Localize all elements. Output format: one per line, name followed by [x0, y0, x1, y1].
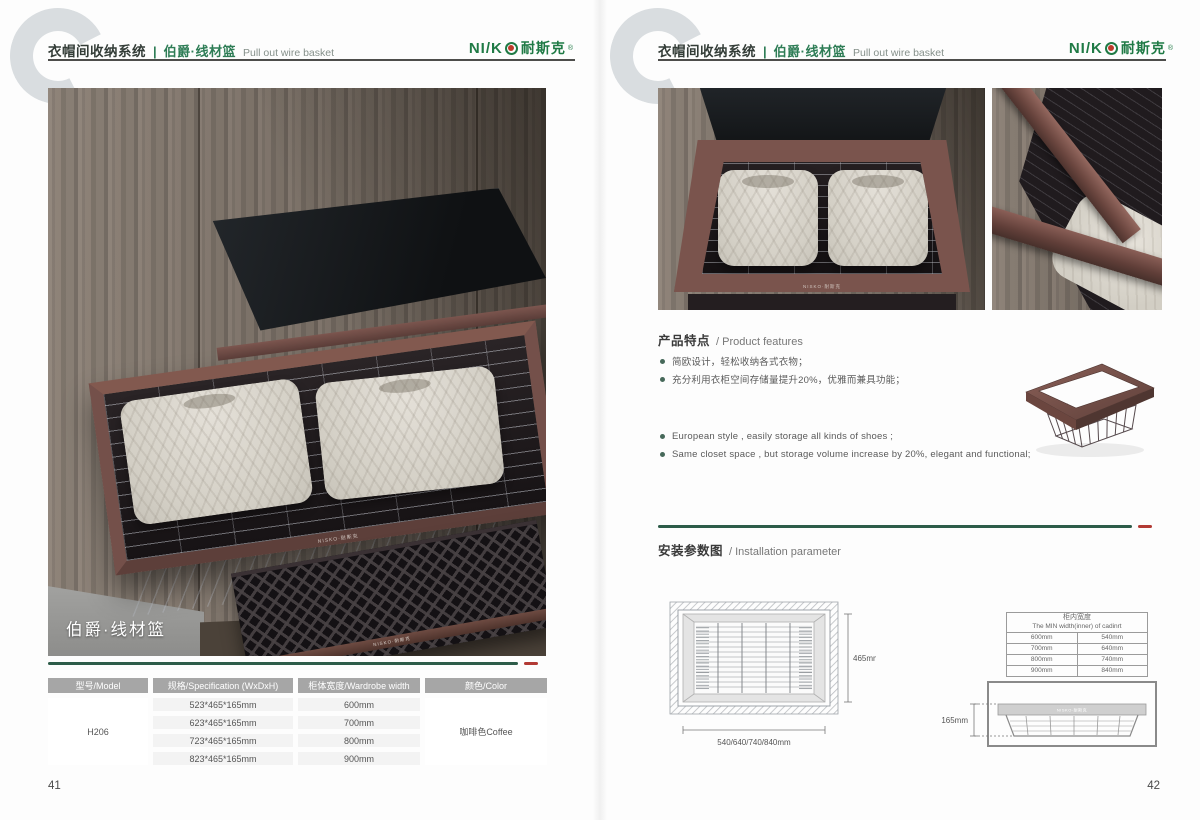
divider-red-bar — [1138, 525, 1152, 528]
table-row: 700mm 640mm — [1007, 644, 1148, 655]
wire-basket-frame: NISKO·耐斯克 — [674, 140, 970, 292]
header-system-title: 衣帽间收纳系统 — [48, 40, 146, 60]
min-width-table: 柜内宽度 The MIN width(inner) of cadinrt 600… — [1006, 612, 1148, 677]
header-product-title: 伯爵·线材篮 — [774, 41, 846, 60]
bullet-icon — [660, 359, 665, 364]
lower-rack-shadow — [688, 294, 956, 310]
spec-table-header-model: 型号/Model — [48, 678, 148, 693]
width-cell: 700mm — [298, 716, 420, 729]
page-header: 衣帽间收纳系统 | 伯爵·线材篮 Pull out wire basket — [658, 40, 944, 60]
logo-o-icon — [1105, 42, 1118, 55]
cabinet-width-cell: 800mm — [1007, 655, 1078, 666]
min-width-title-cn: 柜内宽度 — [1007, 614, 1147, 623]
logo-chinese-text: 耐斯克 — [521, 38, 566, 58]
bullet-icon — [660, 452, 665, 457]
glass-shelf — [692, 88, 954, 146]
page-gutter — [593, 0, 607, 820]
min-inner-cell: 740mm — [1077, 655, 1148, 666]
feature-bullet: 简欧设计，轻松收纳各式衣物； — [660, 354, 808, 368]
spec-table-header-wardrobe-width: 柜体宽度/Wardrobe width — [298, 678, 420, 693]
table-row: 600mm 540mm — [1007, 632, 1148, 643]
min-width-table-title: 柜内宽度 The MIN width(inner) of cadinrt — [1007, 613, 1148, 633]
spec-model-cell: H206 — [48, 698, 148, 765]
wire-basket-interior — [702, 162, 942, 274]
spec-color-cell: 咖啡色Coffee — [425, 698, 547, 765]
spec-table-header-color: 颜色/Color — [425, 678, 547, 693]
section-divider — [658, 525, 1152, 528]
sweater — [718, 170, 818, 266]
feature-bullet: 充分利用衣柜空间存储量提升20%，优雅而兼具功能； — [660, 372, 905, 386]
spec-cell: 823*465*165mm — [153, 752, 293, 765]
feature-bullet: Same closet space , but storage volume i… — [660, 449, 1031, 460]
width-cell: 800mm — [298, 734, 420, 747]
logo-latin-text: NI/K — [1069, 40, 1103, 57]
spec-table-header-specification: 规格/Specification (WxDxH) — [153, 678, 293, 693]
page-left: 衣帽间收纳系统 | 伯爵·线材篮 Pull out wire basket NI… — [0, 0, 600, 820]
feature-text: Same closet space , but storage volume i… — [672, 449, 1031, 460]
width-cell: 900mm — [298, 752, 420, 765]
rail-logo-print: NISKO·耐斯克 — [1057, 707, 1087, 713]
features-heading-en: / Product features — [716, 336, 803, 348]
features-heading: 产品特点 / Product features — [658, 330, 803, 349]
bullet-icon — [660, 377, 665, 382]
page-header: 衣帽间收纳系统 | 伯爵·线材篮 Pull out wire basket — [48, 40, 334, 60]
divider-green-bar — [658, 525, 1132, 528]
installation-heading: 安装参数图 / Installation parameter — [658, 540, 841, 559]
side-view-height-label: 165mm — [941, 716, 968, 725]
section-divider — [48, 662, 538, 665]
photo-caption: 伯爵·线材篮 — [66, 616, 166, 640]
logo-registered-mark: ® — [1168, 45, 1173, 52]
feature-text: European style , easily storage all kind… — [672, 431, 893, 442]
sweater — [314, 365, 505, 501]
min-inner-cell: 540mm — [1077, 632, 1148, 643]
feature-bullet: European style , easily storage all kind… — [660, 431, 893, 442]
logo-registered-mark: ® — [568, 45, 573, 52]
table-row: 800mm 740mm — [1007, 655, 1148, 666]
header-rule — [48, 59, 575, 61]
installation-side-view-diagram: NISKO·耐斯克 165mm — [918, 676, 1163, 762]
spec-table: 型号/Model 规格/Specification (WxDxH) 柜体宽度/W… — [48, 678, 547, 765]
installation-top-view-diagram: 465mm 540/640/740/840mm — [666, 598, 876, 758]
header-separator: | — [153, 44, 157, 59]
logo-latin-text: NI/K — [469, 40, 503, 57]
width-cell: 600mm — [298, 698, 420, 711]
header-product-title: 伯爵·线材篮 — [164, 41, 236, 60]
divider-green-bar — [48, 662, 518, 665]
bullet-icon — [660, 434, 665, 439]
feature-text: 简欧设计，轻松收纳各式衣物； — [672, 354, 808, 368]
min-width-title-en: The MIN width(inner) of cadinrt — [1007, 623, 1147, 631]
detail-photo-corner — [992, 88, 1162, 310]
spec-cell: 523*465*165mm — [153, 698, 293, 711]
logo-o-icon — [505, 42, 518, 55]
cabinet-width-cell: 600mm — [1007, 632, 1078, 643]
cabinet-width-cell: 700mm — [1007, 644, 1078, 655]
page-right: 衣帽间收纳系统 | 伯爵·线材篮 Pull out wire basket NI… — [600, 0, 1200, 820]
rail-logo-print: NISKO·耐斯克 — [674, 284, 970, 290]
page-number: 41 — [48, 780, 61, 792]
spec-cell: 623*465*165mm — [153, 716, 293, 729]
brand-logo: NI/K 耐斯克 ® — [469, 38, 573, 58]
top-view-width-label: 540/640/740/840mm — [717, 738, 791, 747]
spec-cell: 723*465*165mm — [153, 734, 293, 747]
logo-chinese-text: 耐斯克 — [1121, 38, 1166, 58]
page-number: 42 — [1147, 780, 1160, 792]
sweater — [828, 170, 928, 266]
brand-logo: NI/K 耐斯克 ® — [1069, 38, 1173, 58]
header-system-title: 衣帽间收纳系统 — [658, 40, 756, 60]
features-heading-cn: 产品特点 — [658, 330, 710, 349]
divider-red-bar — [524, 662, 538, 665]
catalog-spread: 衣帽间收纳系统 | 伯爵·线材篮 Pull out wire basket NI… — [0, 0, 1200, 820]
min-inner-cell: 640mm — [1077, 644, 1148, 655]
feature-text: 充分利用衣柜空间存储量提升20%，优雅而兼具功能； — [672, 372, 905, 386]
product-render-illustration — [1012, 338, 1162, 463]
top-view-depth-label: 465mm — [853, 654, 876, 663]
detail-photo-top: NISKO·耐斯克 — [658, 88, 985, 310]
main-product-photo: NISKO·耐斯克 NISKO·耐斯克 伯爵·线材篮 — [48, 88, 546, 656]
installation-heading-cn: 安装参数图 — [658, 540, 723, 559]
installation-heading-en: / Installation parameter — [729, 546, 841, 558]
header-product-subtitle: Pull out wire basket — [853, 47, 944, 59]
header-rule — [658, 59, 1166, 61]
header-product-subtitle: Pull out wire basket — [243, 47, 334, 59]
header-separator: | — [763, 44, 767, 59]
sweater — [119, 377, 315, 526]
